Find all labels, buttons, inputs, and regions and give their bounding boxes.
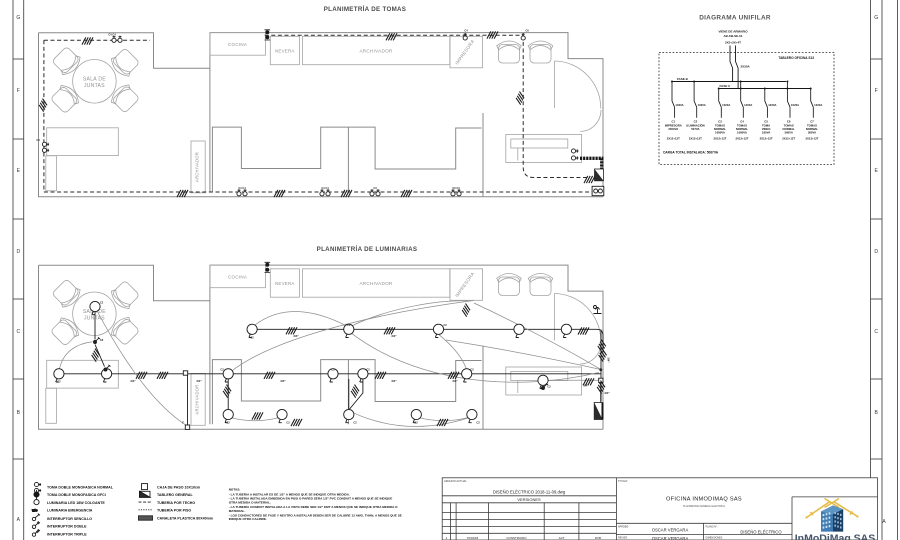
- svg-text:D: D: [16, 249, 20, 255]
- svg-text:C2: C2: [353, 421, 357, 425]
- svg-text:C2: C2: [220, 368, 224, 372]
- svg-text:1X20A: 1X20A: [744, 103, 752, 107]
- svg-text:C: C: [874, 329, 878, 335]
- svg-text:OFICINA INMODIMAQ SAS: OFICINA INMODIMAQ SAS: [666, 497, 742, 503]
- svg-text:TABLERO OFICINA S13: TABLERO OFICINA S13: [778, 56, 814, 60]
- svg-text:MATERIAL.: MATERIAL.: [229, 509, 246, 513]
- svg-text:3/4": 3/4": [607, 357, 611, 363]
- svg-text:1080VA: 1080VA: [737, 131, 747, 135]
- svg-text:REVISÓ:: REVISÓ:: [618, 537, 628, 540]
- svg-text:3/4": 3/4": [196, 379, 202, 383]
- svg-text:C2: C2: [476, 421, 480, 425]
- svg-text:2X12+12T: 2X12+12T: [782, 137, 795, 141]
- svg-text:3/4": 3/4": [604, 391, 610, 395]
- svg-text:G: G: [874, 15, 878, 21]
- svg-text:C2: C2: [286, 421, 290, 425]
- svg-text:PLANIMETRIA GENERAL ELECTRICA: PLANIMETRIA GENERAL ELECTRICA: [683, 505, 725, 508]
- svg-text:70/04/18: 70/04/18: [467, 536, 479, 540]
- svg-text:C2: C2: [250, 336, 254, 340]
- svg-text:2X12+12T: 2X12+12T: [667, 137, 680, 141]
- svg-text:1080VA: 1080VA: [715, 131, 725, 135]
- svg-text:360VA: 360VA: [808, 131, 816, 135]
- svg-text:C2: C2: [347, 323, 351, 327]
- svg-text:507VA: 507VA: [691, 127, 699, 131]
- svg-text:1X20A: 1X20A: [722, 103, 730, 107]
- svg-text:ACT: ACT: [559, 536, 565, 540]
- svg-text:INTERRUPTOR TRIPLE: INTERRUPTOR TRIPLE: [47, 532, 87, 536]
- svg-text:F: F: [17, 88, 20, 94]
- svg-text:C3: C3: [36, 138, 40, 142]
- svg-text:180VA: 180VA: [762, 131, 770, 135]
- svg-text:PLANIMETRÍA DE TOMAS: PLANIMETRÍA DE TOMAS: [324, 5, 407, 13]
- svg-text:C3: C3: [373, 186, 377, 190]
- svg-text:C4 C4: C4 C4: [238, 186, 246, 190]
- svg-text:2X12+12T: 2X12+12T: [689, 137, 702, 141]
- svg-text:InMoDiMaq SAS: InMoDiMaq SAS: [795, 533, 876, 540]
- svg-text:INTERRUPTOR SENCILLO: INTERRUPTOR SENCILLO: [47, 517, 92, 521]
- svg-text:C8: C8: [100, 338, 104, 342]
- svg-text:LUMINARIA LED 18W COLGANTE: LUMINARIA LED 18W COLGANTE: [47, 501, 105, 505]
- svg-text:TABLERO GENERAL: TABLERO GENERAL: [157, 493, 193, 497]
- svg-text:C6: C6: [525, 29, 529, 33]
- svg-text:CAJA DE PASO 10X10cm: CAJA DE PASO 10X10cm: [157, 485, 200, 489]
- svg-text:2X30A: 2X30A: [741, 65, 751, 69]
- svg-text:3/4": 3/4": [583, 384, 589, 388]
- svg-text:wle: wle: [31, 509, 38, 513]
- svg-text:1X20A: 1X20A: [675, 103, 683, 107]
- svg-text:1X20A: 1X20A: [814, 103, 822, 107]
- svg-text:C4: C4: [464, 29, 468, 33]
- svg-text:1X20A: 1X20A: [791, 103, 799, 107]
- svg-text:3/4": 3/4": [280, 379, 286, 383]
- svg-text:PLANIMETRÍA DE LUMINARIAS: PLANIMETRÍA DE LUMINARIAS: [317, 245, 418, 253]
- svg-text:2X12+12T: 2X12+12T: [714, 137, 727, 141]
- svg-text:C4 C4: C4 C4: [108, 32, 116, 36]
- svg-text:DISEÑO ELÉCTRICO 2018-11-09.dw: DISEÑO ELÉCTRICO 2018-11-09.dwg: [493, 489, 566, 494]
- svg-text:3/4": 3/4": [130, 379, 136, 383]
- svg-text:DVB: DVB: [595, 536, 601, 540]
- svg-text:FASE B: FASE B: [677, 77, 689, 81]
- svg-text:DIMENSIONES:: DIMENSIONES:: [706, 537, 724, 540]
- svg-text:C2: C2: [226, 421, 230, 425]
- svg-text:3/4": 3/4": [391, 334, 397, 338]
- svg-text:TOMA DOBLE MONOFASICA NORMAL: TOMA DOBLE MONOFASICA NORMAL: [47, 485, 114, 489]
- svg-text:G: G: [16, 15, 20, 21]
- svg-text:C2: C2: [57, 380, 61, 384]
- svg-text:2X12+12T: 2X12+12T: [736, 137, 749, 141]
- svg-text:1X20A: 1X20A: [698, 103, 706, 107]
- svg-text:ARCHIVO ACTUAL: ARCHIVO ACTUAL: [444, 479, 467, 483]
- svg-text:D: D: [874, 249, 878, 255]
- svg-text:C: C: [16, 329, 20, 335]
- svg-text:2X2+2X+4T: 2X2+2X+4T: [725, 41, 741, 45]
- svg-text:VERSIONES: VERSIONES: [517, 497, 541, 502]
- svg-text:C4 C4: C4 C4: [321, 186, 329, 190]
- svg-text:C2: C2: [443, 323, 447, 327]
- svg-text:INDIQUE OTRO CALIBRE.: INDIQUE OTRO CALIBRE.: [229, 517, 267, 521]
- svg-text:3/4": 3/4": [452, 379, 458, 383]
- svg-text:C2: C2: [100, 301, 104, 305]
- svg-text:TITULO:: TITULO:: [618, 479, 628, 483]
- svg-text:C3 C3: C3 C3: [452, 186, 460, 190]
- svg-text:- LA TUBERIA CONDUIT INSTALADA: - LA TUBERIA CONDUIT INSTALADA A LA VIST…: [229, 505, 398, 509]
- svg-text:2X13+12T: 2X13+12T: [806, 137, 819, 141]
- svg-text:INTERRUPTOR DOBLE: INTERRUPTOR DOBLE: [47, 525, 87, 529]
- svg-text:C2: C2: [331, 368, 335, 372]
- svg-text:OTRA MEDIDA O MATERIAL.: OTRA MEDIDA O MATERIAL.: [229, 500, 271, 504]
- svg-text:C2: C2: [470, 368, 474, 372]
- svg-text:FASE C: FASE C: [720, 84, 732, 88]
- svg-text:360VA: 360VA: [785, 131, 793, 135]
- svg-text:3/4": 3/4": [293, 334, 299, 338]
- svg-text:TOMA DOBLE MONOFASICA GFCI: TOMA DOBLE MONOFASICA GFCI: [47, 493, 106, 497]
- svg-text:- LA TUBERIA A INSTALAR ES DE: - LA TUBERIA A INSTALAR ES DE 1/2" A MEN…: [229, 492, 350, 496]
- svg-text:OSCAR VERGARA: OSCAR VERGARA: [652, 527, 689, 532]
- svg-text:C2: C2: [366, 368, 370, 372]
- svg-text:TUBERÍA POR TECHO: TUBERÍA POR TECHO: [157, 500, 195, 505]
- svg-text:C2: C2: [414, 421, 418, 425]
- svg-text:OSCAR VERGARA: OSCAR VERGARA: [652, 536, 689, 540]
- svg-text:CARGA TOTAL INSTALADA: 5067VA: CARGA TOTAL INSTALADA: 5067VA: [663, 151, 719, 155]
- svg-text:NOTAS:: NOTAS:: [229, 488, 241, 492]
- svg-text:DISEÑO ELÉCTRICO: DISEÑO ELÉCTRICO: [740, 529, 782, 534]
- svg-text:DIAGRAMA UNIFILAR: DIAGRAMA UNIFILAR: [699, 15, 771, 22]
- svg-text:LUMINARIA EMERGENCIA: LUMINARIA EMERGENCIA: [47, 508, 93, 512]
- svg-text:PLANO N°:: PLANO N°:: [706, 525, 718, 528]
- svg-text:APROBÓ:: APROBÓ:: [618, 525, 629, 528]
- svg-text:1X20A: 1X20A: [768, 103, 776, 107]
- svg-text:F: F: [875, 88, 878, 94]
- svg-text:2000VA: 2000VA: [668, 127, 678, 131]
- svg-text:AB-CB-SE-01: AB-CB-SE-01: [723, 34, 742, 38]
- svg-text:2X12+12T: 2X12+12T: [760, 137, 773, 141]
- svg-text:CANALETA PLASTICA 80X40mm: CANALETA PLASTICA 80X40mm: [157, 517, 213, 521]
- svg-text:CONSTRUIDO: CONSTRUIDO: [506, 536, 527, 540]
- svg-text:3/4": 3/4": [391, 379, 397, 383]
- svg-text:TUBERÍA POR PISO: TUBERÍA POR PISO: [157, 508, 191, 513]
